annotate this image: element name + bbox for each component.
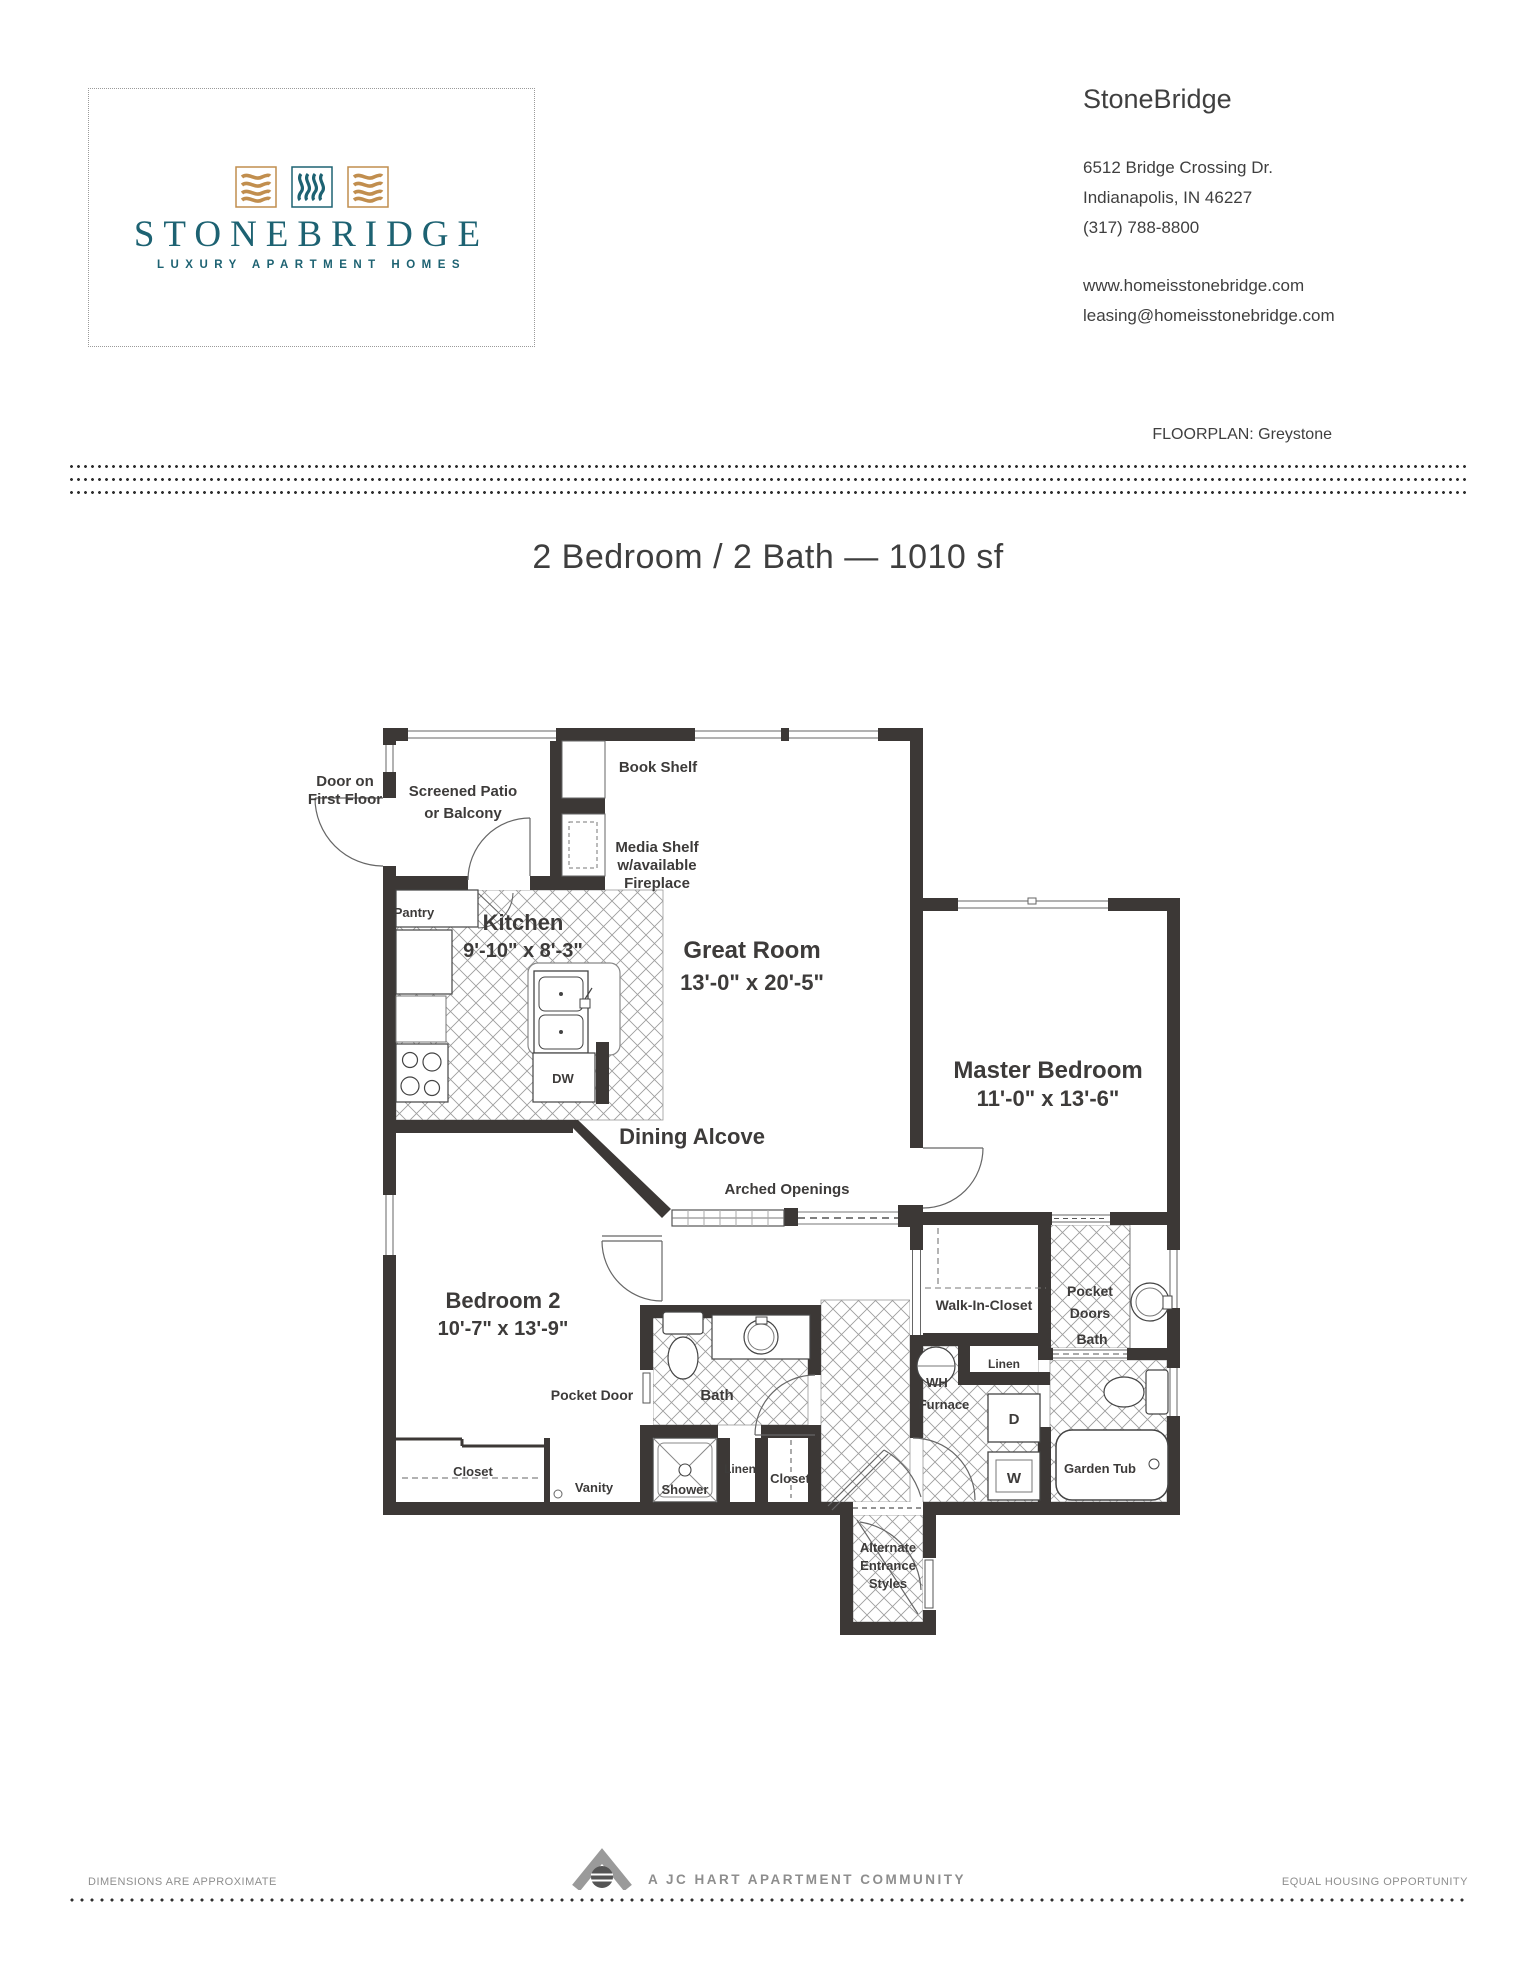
address-line-2: Indianapolis, IN 46227 xyxy=(1083,183,1503,213)
label-dining-alcove: Dining Alcove xyxy=(619,1124,765,1149)
wave-square-teal-icon xyxy=(291,166,333,208)
label-master-line1: Master Bedroom xyxy=(953,1057,1142,1084)
label-pocket-doors-line1: Pocket xyxy=(1067,1283,1113,1299)
label-pantry: Pantry xyxy=(394,905,435,920)
logo-box: STONEBRIDGE LUXURY APARTMENT HOMES xyxy=(88,88,535,347)
label-alt-entrance-line1: Alternate xyxy=(860,1540,916,1555)
dotted-divider-bottom xyxy=(68,1896,1468,1905)
label-arched-openings: Arched Openings xyxy=(724,1181,849,1198)
label-media-shelf-line3: Fireplace xyxy=(624,875,690,892)
phone-number: (317) 788-8800 xyxy=(1083,213,1503,243)
label-alt-entrance-line3: Styles xyxy=(869,1576,907,1591)
label-pocket-doors-line2: Doors xyxy=(1070,1305,1111,1321)
dotted-divider-top xyxy=(68,460,1468,498)
label-pocket-door: Pocket Door xyxy=(551,1387,634,1403)
label-screened-patio-line1: Screened Patio xyxy=(409,783,517,800)
label-great-room-line1: Great Room xyxy=(683,937,820,964)
label-dryer: D xyxy=(1009,1411,1020,1428)
contact-block: StoneBridge 6512 Bridge Crossing Dr. Ind… xyxy=(1083,84,1503,331)
label-kitchen-line1: Kitchen xyxy=(483,910,564,935)
website-link[interactable]: www.homeisstonebridge.com xyxy=(1083,271,1503,301)
label-master-bath: Bath xyxy=(1076,1331,1107,1347)
label-bedroom2-closet: Closet xyxy=(453,1464,493,1479)
label-furnace: Furnace xyxy=(919,1397,970,1412)
logo-icons xyxy=(89,166,534,208)
label-great-room-line2: 13'-0" x 20'-5" xyxy=(680,970,824,995)
label-dishwasher: DW xyxy=(552,1071,574,1086)
equal-housing-note: EQUAL HOUSING OPPORTUNITY xyxy=(1282,1876,1468,1888)
label-master-linen: Linen xyxy=(988,1357,1020,1371)
floorplan-page: STONEBRIDGE LUXURY APARTMENT HOMES Stone… xyxy=(0,0,1536,1988)
floorplan-name-label: FLOORPLAN: Greystone xyxy=(1152,426,1332,444)
label-vanity: Vanity xyxy=(575,1480,614,1495)
label-water-heater: WH xyxy=(926,1375,948,1390)
label-walk-in-closet: Walk-In-Closet xyxy=(936,1297,1033,1313)
page-title: 2 Bedroom / 2 Bath — 1010 sf xyxy=(0,538,1536,577)
label-door-note-line1: Door on xyxy=(316,773,374,790)
label-book-shelf: Book Shelf xyxy=(619,759,698,776)
email-link[interactable]: leasing@homeisstonebridge.com xyxy=(1083,301,1503,331)
wave-square-gold-icon xyxy=(347,166,389,208)
label-washer: W xyxy=(1007,1470,1022,1487)
label-media-shelf-line2: w/available xyxy=(616,857,696,874)
jchart-community-text: A JC HART APARTMENT COMMUNITY xyxy=(648,1872,966,1890)
label-kitchen-line2: 9'-10" x 8'-3" xyxy=(463,940,583,962)
property-name: StoneBridge xyxy=(1083,84,1503,115)
label-door-note-line2: First Floor xyxy=(308,791,382,808)
label-bedroom2-line2: 10'-7" x 13'-9" xyxy=(438,1318,569,1340)
label-alt-entrance-line2: Entrance xyxy=(860,1558,916,1573)
label-hall-closet: Closet xyxy=(770,1471,810,1486)
label-garden-tub: Garden Tub xyxy=(1064,1461,1136,1476)
label-screened-patio-line2: or Balcony xyxy=(424,805,502,822)
logo-wordmark: STONEBRIDGE xyxy=(89,213,534,256)
address-line-1: 6512 Bridge Crossing Dr. xyxy=(1083,153,1503,183)
label-shower: Shower xyxy=(662,1482,709,1497)
label-media-shelf-line1: Media Shelf xyxy=(615,839,699,856)
house-icon xyxy=(570,1844,634,1890)
label-master-line2: 11'-0" x 13'-6" xyxy=(977,1086,1120,1111)
label-hall-linen: Linen xyxy=(724,1462,756,1476)
label-hall-bath: Bath xyxy=(700,1387,733,1404)
logo-tagline: LUXURY APARTMENT HOMES xyxy=(89,259,534,271)
label-bedroom2-line1: Bedroom 2 xyxy=(446,1288,561,1313)
floor-plan-svg: Door on First Floor Screened Patio or Ba… xyxy=(250,690,1200,1650)
wave-square-gold-icon xyxy=(235,166,277,208)
floor-plan: Door on First Floor Screened Patio or Ba… xyxy=(250,690,1200,1650)
